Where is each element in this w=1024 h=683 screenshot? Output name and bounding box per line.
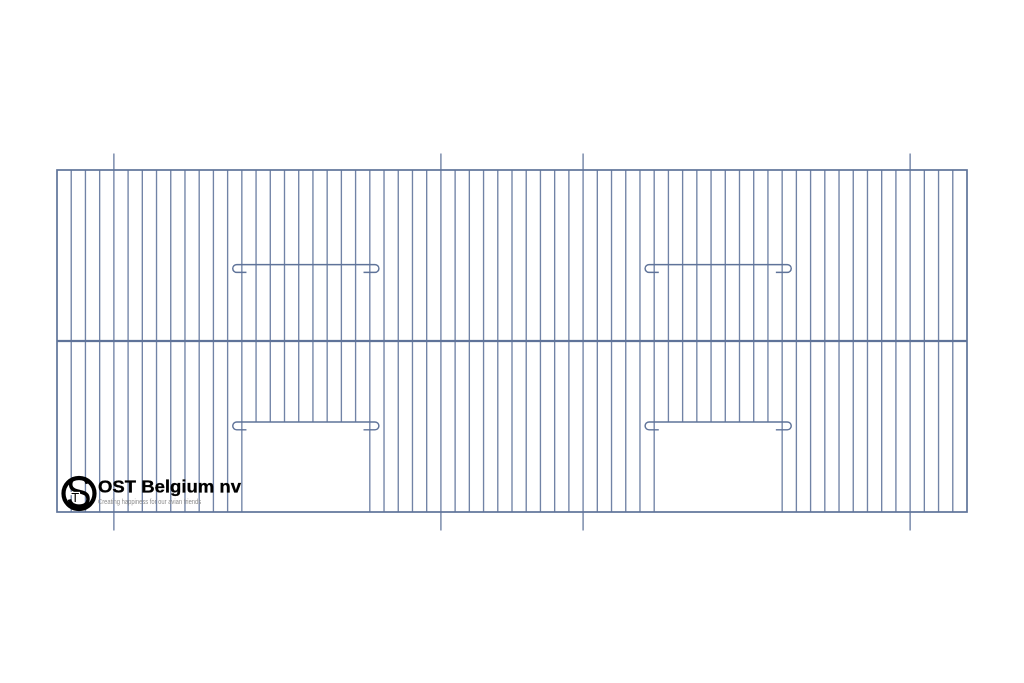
svg-text:OST Belgium nv: OST Belgium nv bbox=[98, 477, 241, 497]
svg-text:Creating happiness for our avi: Creating happiness for our avian friends bbox=[98, 499, 201, 507]
svg-text:T: T bbox=[71, 490, 79, 505]
